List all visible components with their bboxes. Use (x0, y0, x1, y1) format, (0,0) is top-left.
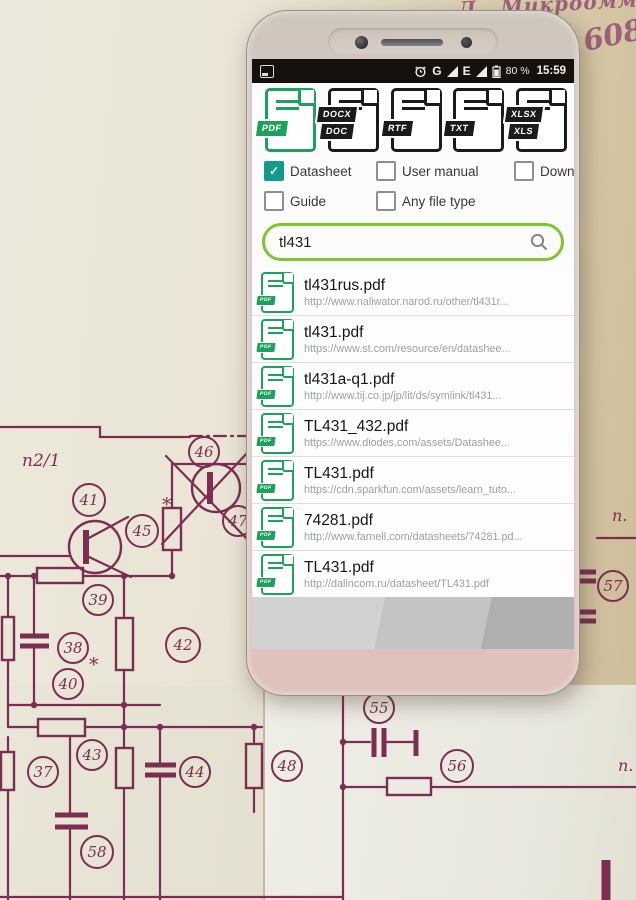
result-url: http://www.naliwator.narod.ru/other/tl43… (304, 296, 568, 308)
filter-guide[interactable]: Guide (264, 191, 376, 211)
result-row[interactable]: PDFtl431a-q1.pdfhttp://www.tij.co.jp/jp/… (252, 363, 574, 410)
search-box[interactable] (262, 223, 564, 261)
schematic-callout-39: 39 (83, 585, 113, 615)
battery-percent: 80 % (506, 65, 530, 77)
folded-corner (486, 90, 502, 106)
result-title: TL431_432.pdf (304, 417, 568, 436)
earpiece-speaker (381, 39, 443, 46)
schematic-callout-44: 44 (180, 757, 210, 787)
format-banner: PDF (255, 577, 276, 588)
proximity-sensor (461, 37, 472, 48)
format-banner: PDF (255, 389, 276, 400)
result-row[interactable]: PDFtl431.pdfhttps://www.st.com/resource/… (252, 316, 574, 363)
checkbox-unchecked[interactable] (514, 161, 534, 181)
result-row[interactable]: PDFTL431.pdfhttp://dalincom.ru/datasheet… (252, 551, 574, 598)
format-banner: DOC (317, 122, 355, 141)
checkbox-unchecked[interactable] (376, 161, 396, 181)
folded-corner (298, 90, 314, 106)
checkbox-unchecked[interactable] (264, 191, 284, 211)
svg-text:58: 58 (87, 843, 106, 861)
result-title: 74281.pdf (304, 511, 568, 530)
schematic-callout-43: 43 (77, 740, 107, 770)
format-banner: PDF (255, 342, 276, 353)
file-type-txt[interactable]: TXT (447, 88, 504, 152)
notification-icon (260, 65, 274, 78)
folded-corner (424, 90, 440, 106)
result-title: tl431rus.pdf (304, 276, 568, 295)
status-bar: G E 80 % 15:59 (252, 59, 574, 83)
format-banner: PDF (255, 530, 276, 541)
network-g-label: G (432, 64, 441, 78)
result-row[interactable]: PDFTL431_432.pdfhttps://www.diodes.com/a… (252, 410, 574, 457)
network-e-label: E (463, 64, 471, 78)
format-banner: TXT (442, 119, 477, 138)
signal-icon (447, 66, 458, 77)
format-banner: RTF (379, 119, 415, 138)
search-input[interactable] (277, 233, 529, 252)
schematic-label: п2/1 (22, 451, 60, 471)
checkbox-checked[interactable] (264, 161, 284, 181)
pdf-file-icon: PDF (258, 319, 294, 360)
schematic-callout-56: 56 (441, 750, 473, 782)
battery-icon (492, 65, 501, 78)
schematic-callout-46: 46 (189, 437, 219, 467)
result-url: https://www.diodes.com/assets/Datashee..… (304, 437, 568, 449)
file-type-row: PDFDOCXDOCRTFTXTXLSXXLS (252, 88, 574, 154)
screen-reflection-area (252, 597, 574, 649)
filter-download[interactable]: Download (514, 161, 574, 181)
alarm-icon (414, 65, 427, 78)
svg-text:47: 47 (227, 512, 248, 530)
phone-screen: G E 80 % 15:59 P (252, 59, 574, 649)
svg-text:38: 38 (63, 639, 82, 657)
result-row[interactable]: PDF74281.pdfhttp://www.farnell.com/datas… (252, 504, 574, 551)
svg-text:41: 41 (78, 491, 98, 509)
schematic-callout-42: 42 (166, 628, 200, 662)
result-row[interactable]: PDFTL431.pdfhttps://cdn.sparkfun.com/ass… (252, 457, 574, 504)
schematic-callout-58: 58 (81, 836, 113, 868)
format-banner: XLS (506, 122, 542, 141)
result-url: http://dalincom.ru/datasheet/TL431.pdf (304, 578, 568, 590)
folded-corner (282, 555, 293, 566)
clock: 15:59 (537, 65, 566, 77)
svg-text:56: 56 (447, 757, 467, 775)
folded-corner (282, 414, 293, 425)
result-url: https://www.st.com/resource/en/datashee.… (304, 343, 568, 355)
svg-text:44: 44 (184, 763, 204, 781)
svg-text:39: 39 (88, 591, 108, 609)
format-banner: PDF (255, 436, 276, 447)
filter-datasheet[interactable]: Datasheet (264, 161, 376, 181)
result-title: tl431a-q1.pdf (304, 370, 568, 389)
signal-icon-2 (476, 66, 487, 77)
file-type-xls[interactable]: XLSXXLS (510, 88, 567, 152)
svg-text:57: 57 (603, 577, 623, 595)
schematic-callout-45: 45* (126, 494, 172, 547)
filter-label: Any file type (402, 194, 476, 209)
folded-corner (549, 90, 565, 106)
pdf-file-icon: PDF (258, 507, 294, 548)
schematic-callout-38: 38 (58, 633, 88, 663)
schematic-label: п. (612, 506, 627, 525)
result-title: TL431.pdf (304, 558, 568, 577)
svg-text:*: * (89, 654, 99, 676)
svg-text:43: 43 (81, 746, 101, 764)
folded-corner (282, 273, 293, 284)
pdf-file-icon: PDF (258, 272, 294, 313)
results-list: PDFtl431rus.pdfhttp://www.naliwator.naro… (252, 269, 574, 598)
folded-corner (282, 508, 293, 519)
pdf-file-icon: PDF (258, 413, 294, 454)
folded-corner (282, 367, 293, 378)
front-camera (355, 36, 368, 49)
result-url: http://www.tij.co.jp/jp/lit/ds/symlink/t… (304, 390, 568, 402)
search-icon[interactable] (529, 232, 549, 252)
svg-text:46: 46 (193, 443, 214, 461)
file-type-pdf[interactable]: PDF (259, 88, 316, 152)
pdf-file-icon: PDF (258, 554, 294, 595)
file-type-rtf[interactable]: RTF (385, 88, 442, 152)
folded-corner (282, 320, 293, 331)
scene: 46474145*393840*424337444858555657п2/1п.… (0, 0, 636, 900)
format-banner: PDF (254, 119, 290, 138)
schematic-label: п. (618, 756, 633, 775)
filter-label: Guide (290, 194, 326, 209)
result-title: tl431.pdf (304, 323, 568, 342)
schematic-callout-41: 41 (73, 484, 105, 516)
checkbox-unchecked[interactable] (376, 191, 396, 211)
result-url: https://cdn.sparkfun.com/assets/learn_tu… (304, 484, 568, 496)
schematic-callout-57: 57 (598, 571, 628, 601)
svg-text:48: 48 (276, 757, 296, 775)
phone: G E 80 % 15:59 P (246, 10, 580, 696)
schematic-callout-37: 37 (28, 757, 58, 787)
filter-user-manual[interactable]: User manual (376, 161, 514, 181)
schematic-callout-55: 55 (364, 693, 394, 723)
svg-text:55: 55 (369, 699, 388, 717)
filter-row: DatasheetUser manualDownloadGuideAny fil… (252, 154, 574, 217)
schematic-callout-48: 48 (272, 751, 302, 781)
svg-text:37: 37 (33, 763, 53, 781)
pdf-file-icon: PDF (258, 460, 294, 501)
result-url: http://www.farnell.com/datasheets/74281.… (304, 531, 568, 543)
filter-label: Datasheet (290, 164, 352, 179)
result-title: TL431.pdf (304, 464, 568, 483)
file-type-doc[interactable]: DOCXDOC (322, 88, 379, 152)
filter-any-file-type[interactable]: Any file type (376, 191, 514, 211)
svg-text:40: 40 (57, 675, 78, 693)
folded-corner (282, 461, 293, 472)
format-banner: PDF (255, 295, 276, 306)
filter-label: Download (540, 164, 574, 179)
filter-label: User manual (402, 164, 479, 179)
svg-text:42: 42 (172, 636, 192, 654)
schematic-callout-40: 40* (53, 654, 99, 699)
pdf-file-icon: PDF (258, 366, 294, 407)
format-banner: PDF (255, 483, 276, 494)
svg-text:45: 45 (131, 522, 151, 540)
folded-corner (361, 90, 377, 106)
svg-text:*: * (162, 494, 172, 516)
result-row[interactable]: PDFtl431rus.pdfhttp://www.naliwator.naro… (252, 269, 574, 316)
